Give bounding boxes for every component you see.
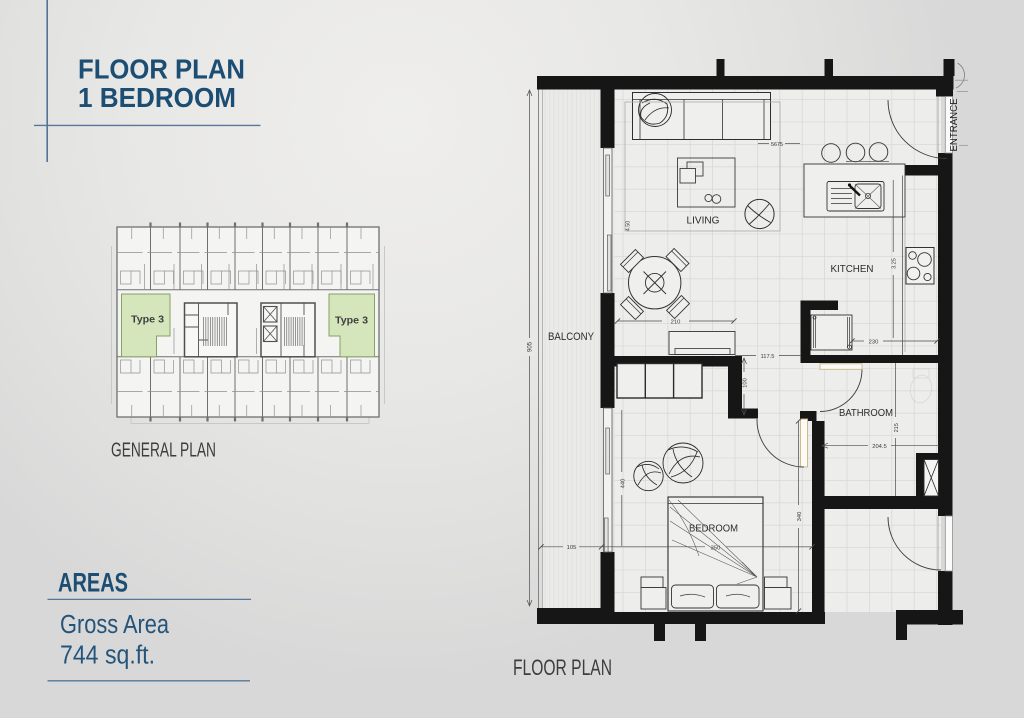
svg-text:5675: 5675 xyxy=(771,142,783,148)
svg-text:350: 350 xyxy=(711,545,721,551)
svg-text:BATHROOM: BATHROOM xyxy=(839,407,893,419)
svg-text:KITCHEN: KITCHEN xyxy=(831,263,874,275)
svg-text:3.25: 3.25 xyxy=(892,258,898,269)
svg-text:215: 215 xyxy=(894,423,900,432)
svg-text:440: 440 xyxy=(620,479,626,489)
svg-text:905: 905 xyxy=(528,341,534,352)
svg-text:100: 100 xyxy=(743,378,749,388)
svg-text:GENERAL PLAN: GENERAL PLAN xyxy=(111,440,216,462)
svg-text:LIVING: LIVING xyxy=(687,216,720,227)
svg-text:340: 340 xyxy=(797,512,803,522)
svg-text:FLOOR PLAN: FLOOR PLAN xyxy=(513,655,612,680)
svg-text:744 sq.ft.: 744 sq.ft. xyxy=(60,642,155,670)
svg-text:230: 230 xyxy=(869,339,879,345)
svg-text:BEDROOM: BEDROOM xyxy=(689,524,738,535)
svg-text:Type 3: Type 3 xyxy=(131,314,164,326)
svg-text:210: 210 xyxy=(671,319,681,325)
svg-text:BALCONY: BALCONY xyxy=(548,331,595,343)
svg-text:AREAS: AREAS xyxy=(58,568,128,598)
svg-text:Type 3: Type 3 xyxy=(335,315,368,327)
svg-text:ENTRANCE: ENTRANCE xyxy=(948,99,960,152)
svg-text:4.50: 4.50 xyxy=(626,221,632,232)
svg-text:105: 105 xyxy=(567,545,577,551)
svg-text:FLOOR PLAN: FLOOR PLAN xyxy=(78,54,245,85)
svg-text:1 BEDROOM: 1 BEDROOM xyxy=(78,82,236,113)
svg-text:Gross Area: Gross Area xyxy=(60,611,170,639)
svg-text:117.5: 117.5 xyxy=(760,354,774,360)
svg-text:204.5: 204.5 xyxy=(872,444,887,450)
